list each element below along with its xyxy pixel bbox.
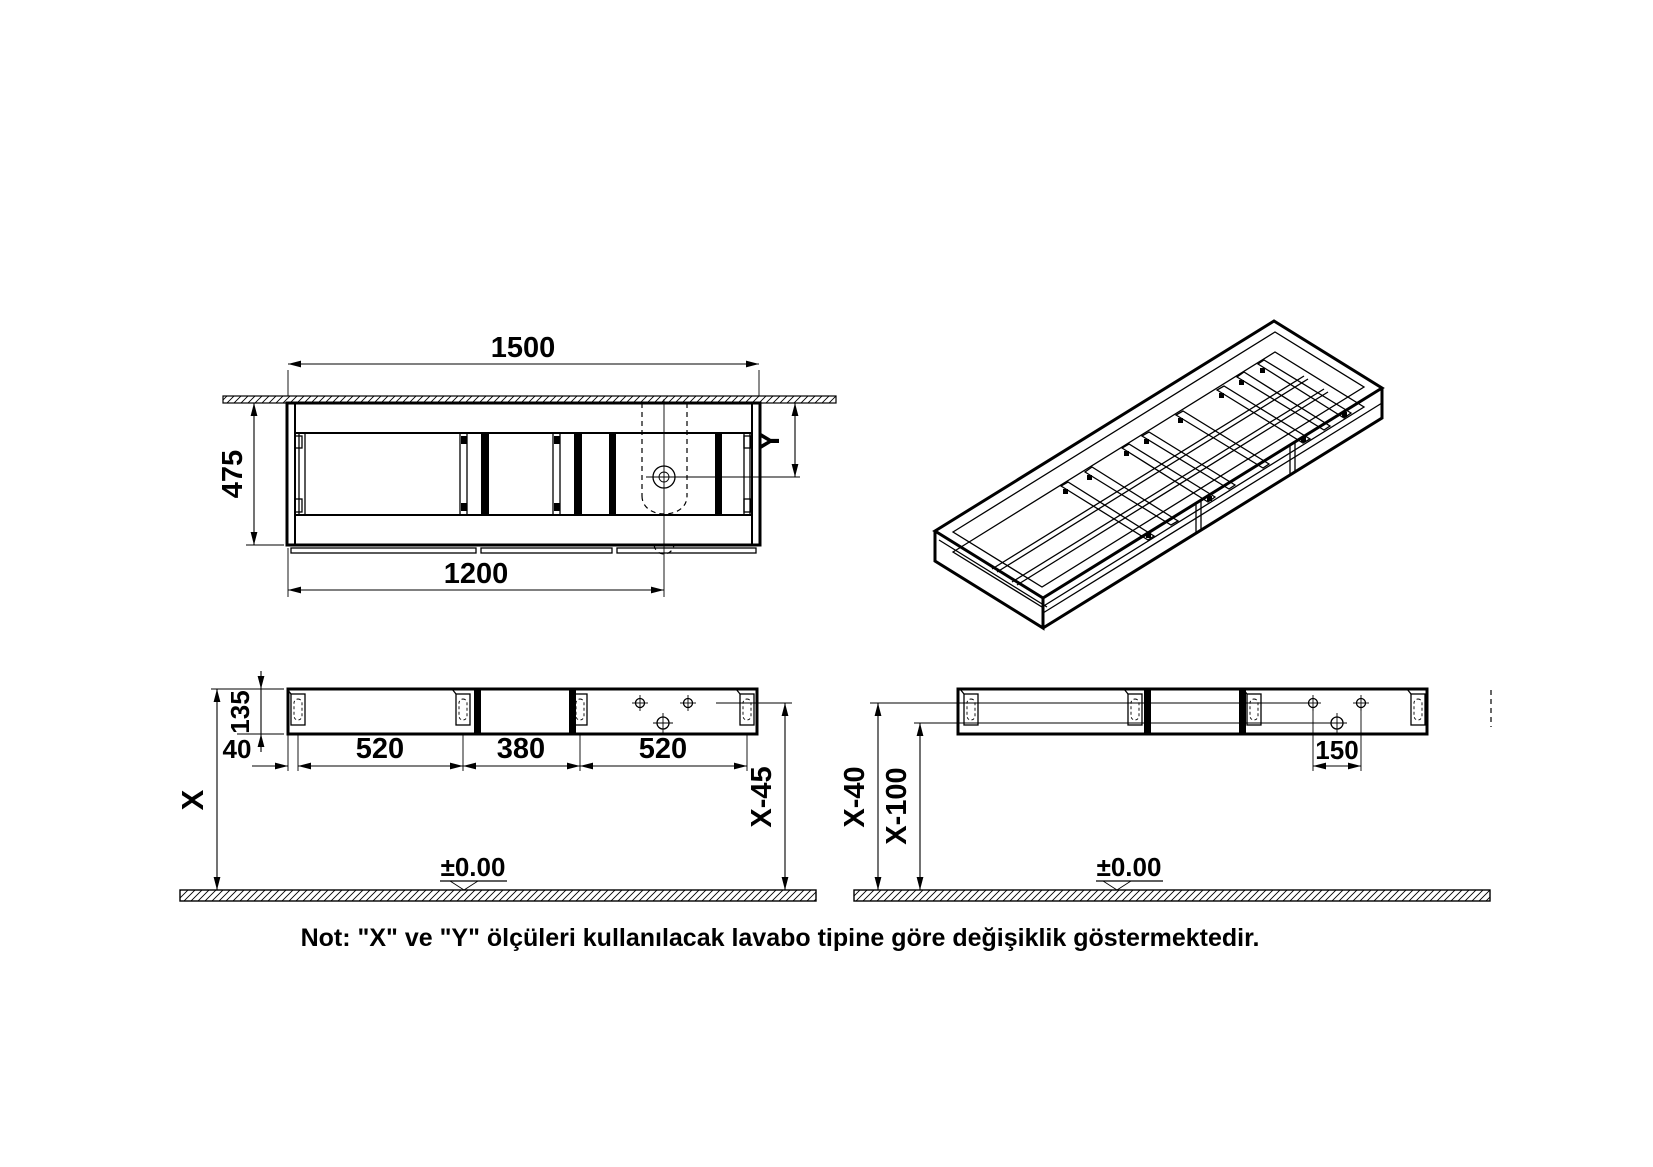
dim-label-depth: 475 bbox=[217, 450, 249, 498]
dim-label-135: 135 bbox=[225, 690, 255, 733]
front-view-right: X-40 X-100 150 ±0.00 bbox=[839, 689, 1491, 901]
dim-label-380: 380 bbox=[497, 733, 545, 765]
dim-label-520b: 520 bbox=[639, 733, 687, 765]
iso-long-rails bbox=[992, 376, 1328, 585]
front-ledge bbox=[481, 548, 612, 553]
datum-left: ±0.00 bbox=[440, 852, 507, 890]
drain-hole bbox=[646, 399, 800, 597]
panel-divider bbox=[474, 689, 481, 734]
iso-cross-braces bbox=[1061, 360, 1351, 540]
dim-label-drain-x: 1200 bbox=[444, 558, 509, 590]
floor-hatch-left bbox=[180, 890, 816, 901]
drill-holes bbox=[1305, 695, 1369, 733]
drill-holes bbox=[632, 695, 696, 733]
iso-floor bbox=[953, 352, 1364, 607]
dim-label-x40: X-40 bbox=[839, 766, 871, 827]
isometric-view bbox=[935, 321, 1382, 628]
dim-label-520a: 520 bbox=[356, 733, 404, 765]
dim-label-x45: X-45 bbox=[746, 766, 778, 827]
mounting-slots bbox=[287, 689, 754, 725]
panel-divider bbox=[1144, 689, 1151, 734]
mounting-slots bbox=[960, 689, 1425, 725]
datum-label-right: ±0.00 bbox=[1097, 852, 1162, 882]
drawing-canvas: 1500 bbox=[0, 0, 1653, 1167]
rail-outline bbox=[288, 689, 757, 734]
dim-label-x: X bbox=[175, 789, 210, 810]
technical-drawing-page: 1500 bbox=[0, 0, 1653, 1167]
plan-view: 1500 bbox=[217, 332, 836, 597]
iso-front-seam bbox=[1043, 403, 1382, 613]
dim-label-x100: X-100 bbox=[881, 767, 913, 844]
dim-label-150: 150 bbox=[1315, 735, 1358, 765]
cabinet-outline-plan bbox=[287, 403, 760, 545]
front-ledge bbox=[617, 548, 756, 553]
front-ledge bbox=[291, 548, 476, 553]
datum-label-left: ±0.00 bbox=[441, 852, 506, 882]
dim-label-width: 1500 bbox=[491, 332, 556, 364]
iso-inner-opening bbox=[953, 332, 1364, 587]
note-text: Not: "X" ve "Y" ölçüleri kullanılacak la… bbox=[301, 924, 1260, 952]
dim-label-y: Y bbox=[754, 431, 786, 450]
front-view-left: 40 520 380 520 135 X X-45 ±0.00 bbox=[175, 671, 816, 901]
floor-hatch-right bbox=[854, 890, 1490, 901]
drawer-slides bbox=[295, 433, 751, 515]
dim-label-40: 40 bbox=[223, 734, 252, 764]
siphon-cutout bbox=[642, 403, 687, 554]
rail-outline bbox=[958, 689, 1427, 734]
datum-right: ±0.00 bbox=[1096, 852, 1163, 890]
panel-divider bbox=[1239, 689, 1246, 734]
